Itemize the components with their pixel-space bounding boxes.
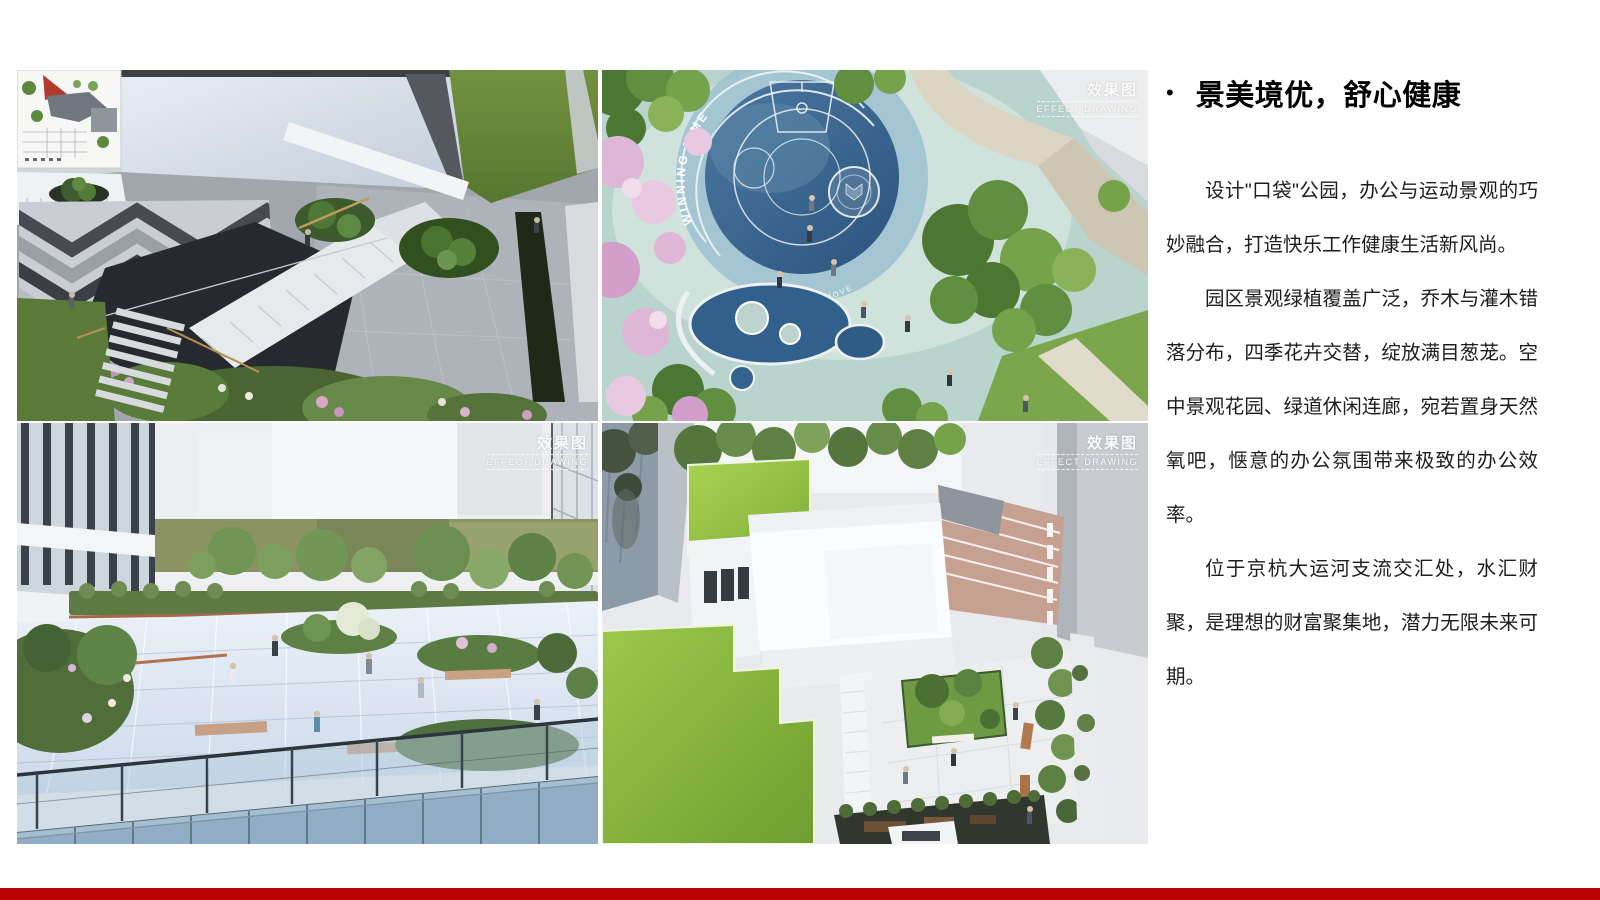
- slide-accent-bar: [0, 888, 1600, 900]
- body-paragraphs: 设计"口袋"公园，办公与运动景观的巧妙融合，打造快乐工作健康生活新风尚。 园区景…: [1166, 164, 1538, 704]
- render-image-rooftop-courtyard: 效果图 EFFECT DRAWING: [602, 423, 1148, 844]
- watermark-en-label: EFFECT DRAWING: [1037, 454, 1139, 469]
- site-plan-inset: [17, 70, 121, 168]
- title-row: • 景美境优，舒心健康: [1166, 72, 1538, 114]
- rooftop-courtyard-illustration: [602, 423, 1148, 844]
- render-image-roof-terrace: 效果图 EFFECT DRAWING: [17, 423, 598, 844]
- watermark-cn-label: 效果图: [1037, 82, 1139, 99]
- paragraph-1: 设计"口袋"公园，办公与运动景观的巧妙融合，打造快乐工作健康生活新风尚。: [1166, 164, 1538, 272]
- render-gallery: WINNING TIME LIFE LIES IN MOVE: [17, 70, 1148, 844]
- watermark-cn-label: 效果图: [487, 435, 589, 452]
- slide-text-column: • 景美境优，舒心健康 设计"口袋"公园，办公与运动景观的巧妙融合，打造快乐工作…: [1166, 72, 1538, 704]
- render-image-courtyard-aerial: [17, 70, 598, 421]
- paragraph-2: 园区景观绿植覆盖广泛，乔木与灌木错落分布，四季花卉交替，绽放满目葱茏。空中景观花…: [1166, 272, 1538, 542]
- render-image-park-court-aerial: WINNING TIME LIFE LIES IN MOVE: [602, 70, 1148, 421]
- courtyard-aerial-illustration: [17, 70, 598, 421]
- park-court-illustration: WINNING TIME LIFE LIES IN MOVE: [602, 70, 1148, 421]
- roof-terrace-illustration: [17, 423, 598, 844]
- watermark-en-label: EFFECT DRAWING: [1037, 101, 1139, 116]
- effect-drawing-watermark: 效果图 EFFECT DRAWING: [487, 435, 589, 470]
- effect-drawing-watermark: 效果图 EFFECT DRAWING: [1037, 435, 1139, 470]
- paragraph-3: 位于京杭大运河支流交汇处，水汇财聚，是理想的财富聚集地，潜力无限未来可期。: [1166, 542, 1538, 704]
- watermark-cn-label: 效果图: [1037, 435, 1139, 452]
- effect-drawing-watermark: 效果图 EFFECT DRAWING: [1037, 82, 1139, 117]
- watermark-en-label: EFFECT DRAWING: [487, 454, 589, 469]
- page-title: 景美境优，舒心健康: [1196, 72, 1462, 114]
- bullet-icon: •: [1166, 82, 1174, 104]
